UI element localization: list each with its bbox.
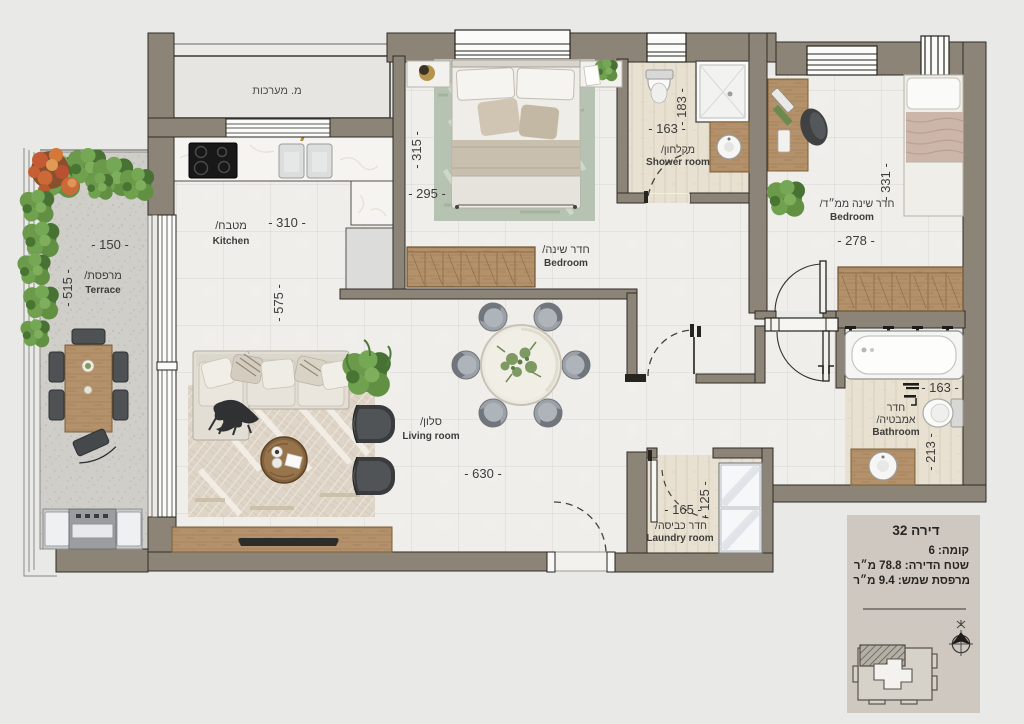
svg-text:שטח הדירה: 78.8 מ״ר: שטח הדירה: 78.8 מ״ר: [854, 559, 969, 572]
svg-text:Bathroom: Bathroom: [872, 427, 919, 438]
svg-text:- 295 -: - 295 -: [408, 186, 446, 201]
svg-text:- 213 -: - 213 -: [923, 433, 938, 471]
svg-text:Bedroom: Bedroom: [544, 258, 588, 269]
svg-text:חדר שינה/: חדר שינה/: [542, 244, 589, 256]
svg-text:- 278 -: - 278 -: [837, 233, 875, 248]
svg-text:Laundry room: Laundry room: [646, 533, 713, 544]
svg-text:חדר: חדר: [887, 402, 905, 414]
svg-text:- 515 -: - 515 -: [60, 269, 75, 307]
svg-text:- 183 -: - 183 -: [674, 88, 689, 126]
svg-text:מרפסת/: מרפסת/: [84, 270, 122, 282]
svg-text:חדר כביסה/: חדר כביסה/: [655, 520, 707, 532]
svg-text:Living room: Living room: [402, 431, 459, 442]
svg-text:Terrace: Terrace: [85, 285, 121, 296]
svg-text:- 575 -: - 575 -: [271, 284, 286, 322]
svg-text:- 331 -: - 331 -: [878, 163, 893, 201]
svg-text:- 315 -: - 315 -: [409, 131, 424, 169]
svg-text:- 150 -: - 150 -: [91, 237, 129, 252]
svg-text:- 630 -: - 630 -: [464, 466, 502, 481]
svg-text:דירה 32: דירה 32: [892, 523, 939, 538]
svg-text:אמבטיה/: אמבטיה/: [876, 414, 915, 426]
svg-text:מקלחון/: מקלחון/: [661, 144, 695, 156]
svg-text:קומה: 6: קומה: 6: [928, 545, 969, 557]
svg-text:Shower room: Shower room: [646, 157, 710, 168]
svg-text:סלון/: סלון/: [420, 415, 442, 428]
svg-text:מרפסת שמש: 9.4 מ״ר: מרפסת שמש: 9.4 מ״ר: [853, 574, 970, 587]
svg-text:מטבח/: מטבח/: [215, 220, 247, 232]
svg-text:Kitchen: Kitchen: [213, 236, 250, 247]
svg-text:- 310 -: - 310 -: [268, 215, 306, 230]
svg-text:- 163 -: - 163 -: [921, 380, 959, 395]
svg-text:- 125 -: - 125 -: [697, 481, 712, 519]
svg-text:Bedroom: Bedroom: [830, 212, 874, 223]
svg-text:מ. מערכות: מ. מערכות: [252, 85, 301, 97]
